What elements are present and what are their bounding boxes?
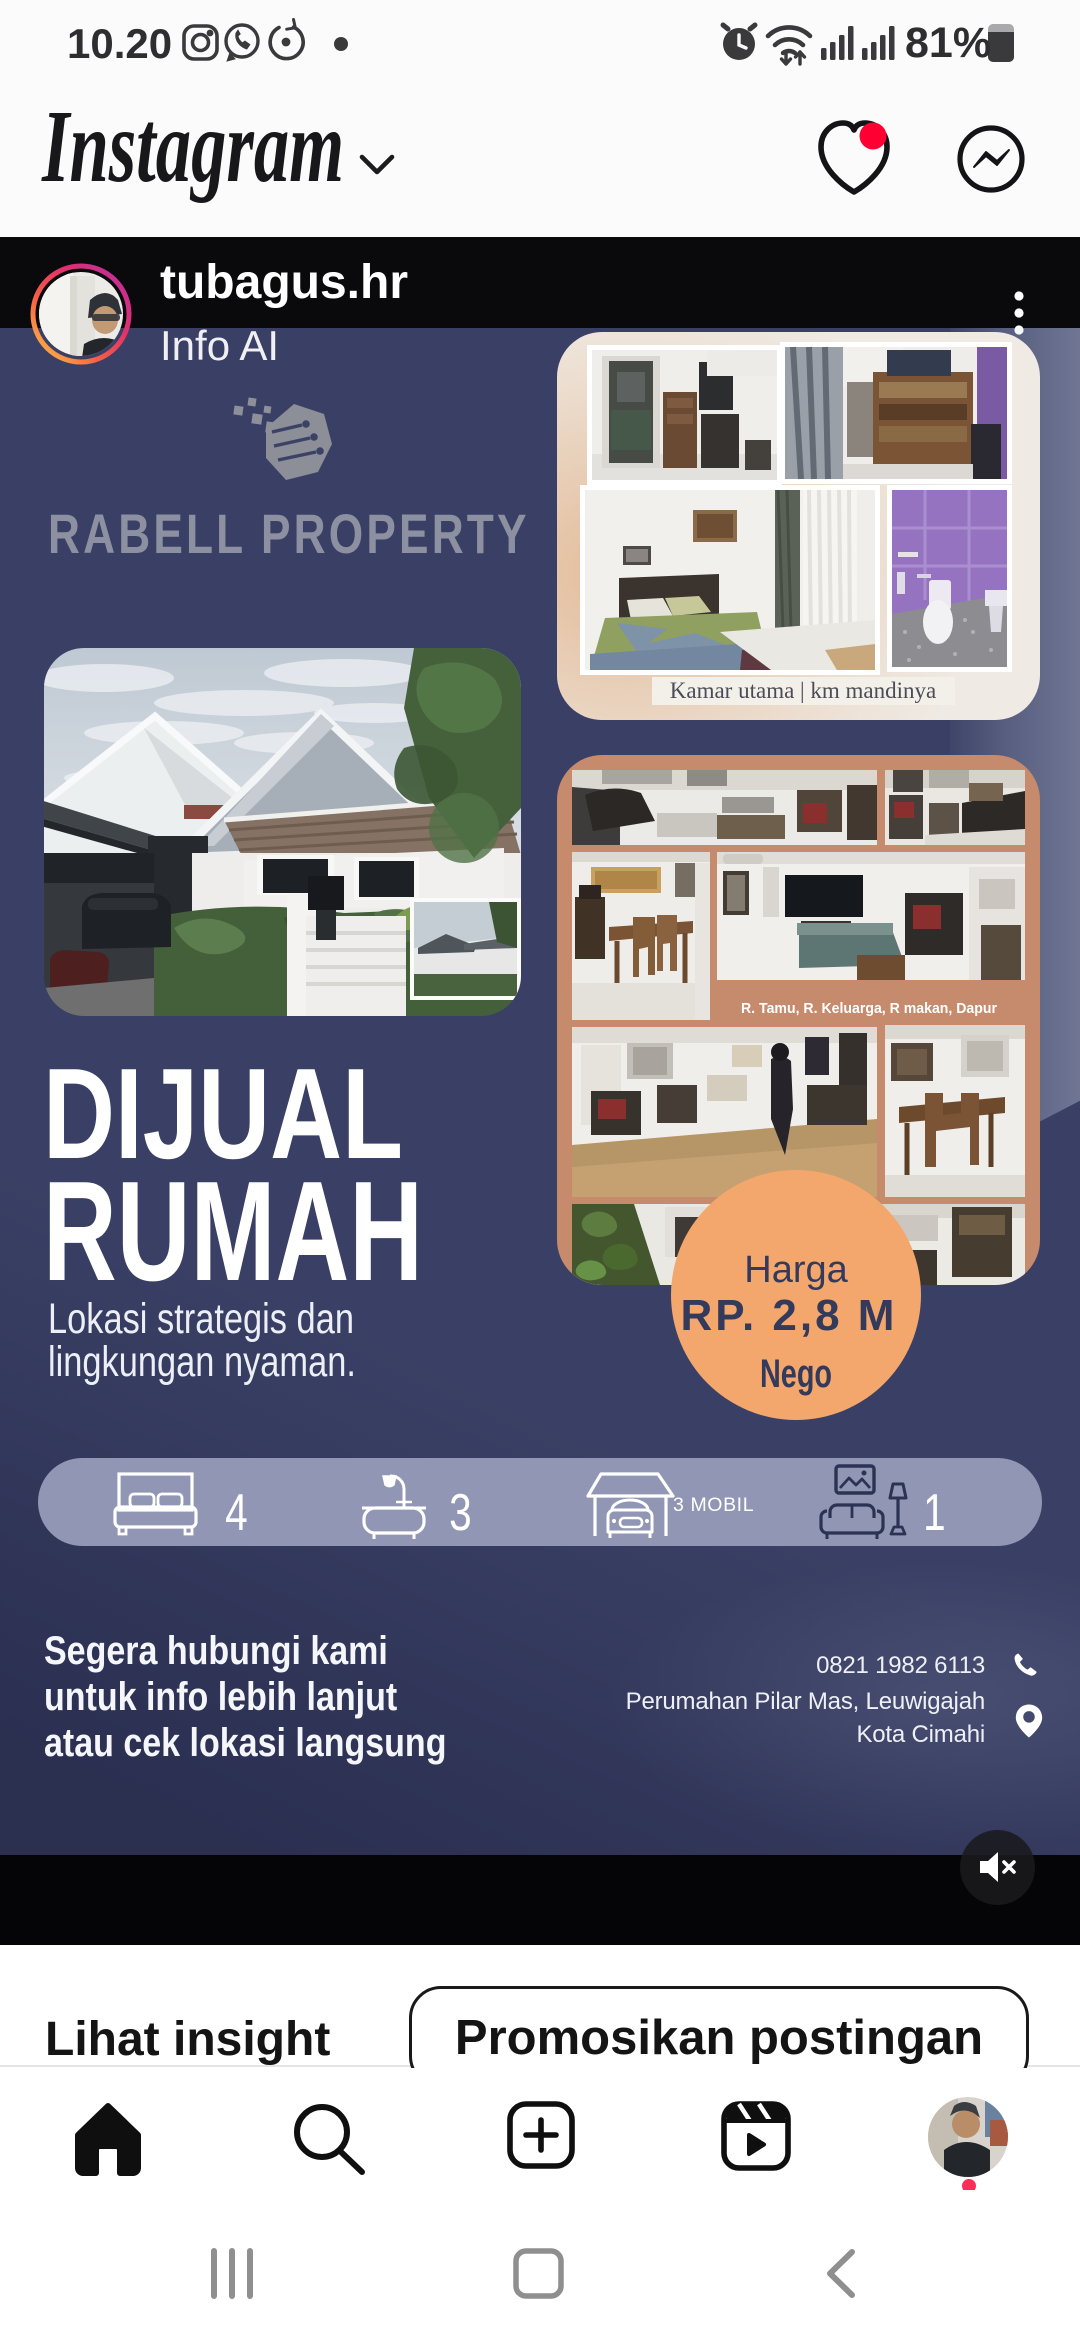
svg-text:Instagram: Instagram — [41, 95, 344, 204]
svg-text:R. Tamu, R. Keluarga, R makan,: R. Tamu, R. Keluarga, R makan, Dapur — [741, 1000, 997, 1017]
svg-text:Kamar utama | km mandinya: Kamar utama | km mandinya — [670, 678, 936, 703]
svg-text:RUMAH: RUMAH — [43, 1152, 423, 1300]
